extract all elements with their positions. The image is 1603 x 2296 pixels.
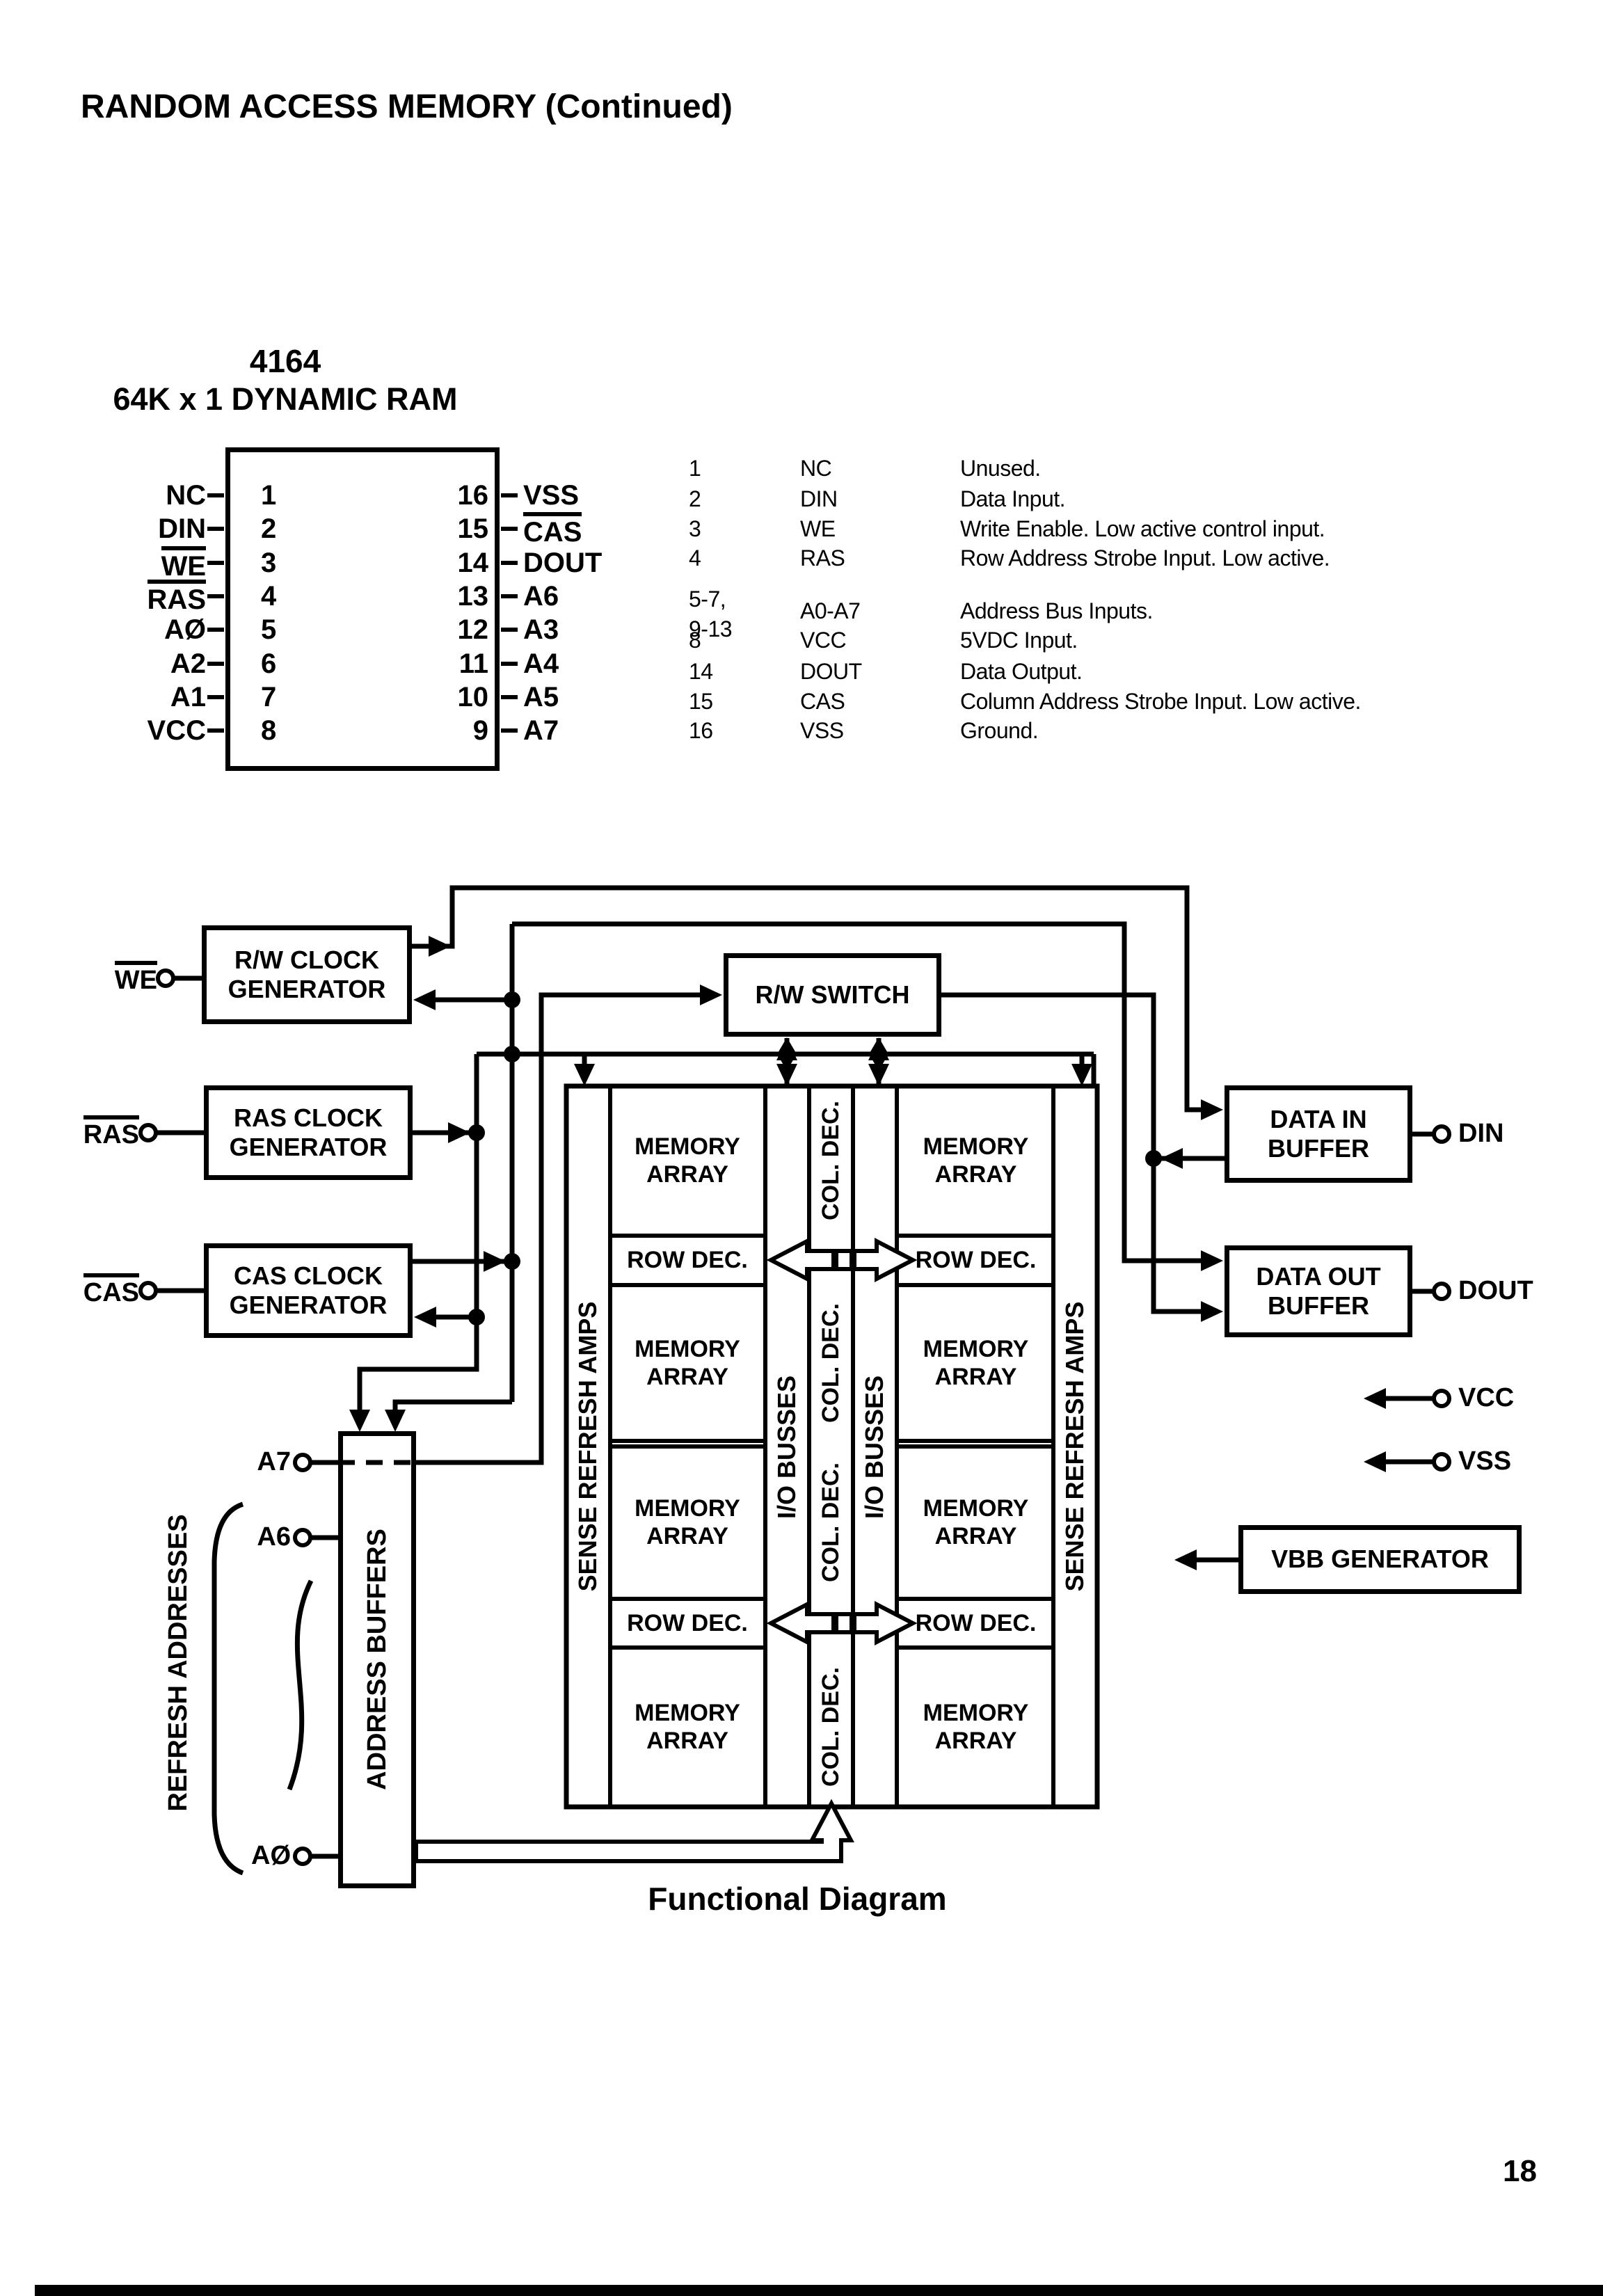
address-to-col-dec-arrow bbox=[416, 1803, 851, 1861]
wiring-layer bbox=[0, 0, 1603, 2296]
omitted-pins-squiggle bbox=[289, 1581, 311, 1789]
signal-wires bbox=[156, 888, 1435, 1873]
chip-pin-stubs bbox=[207, 495, 518, 731]
terminal-circles bbox=[141, 971, 1449, 1864]
junction-dots bbox=[468, 991, 1162, 1325]
col-dec-select-arrows bbox=[416, 1241, 913, 1861]
memory-block-grid bbox=[566, 1086, 1097, 1807]
datasheet-page: RANDOM ACCESS MEMORY (Continued) 4164 64… bbox=[0, 0, 1603, 2296]
refresh-bracket bbox=[214, 1504, 243, 1873]
